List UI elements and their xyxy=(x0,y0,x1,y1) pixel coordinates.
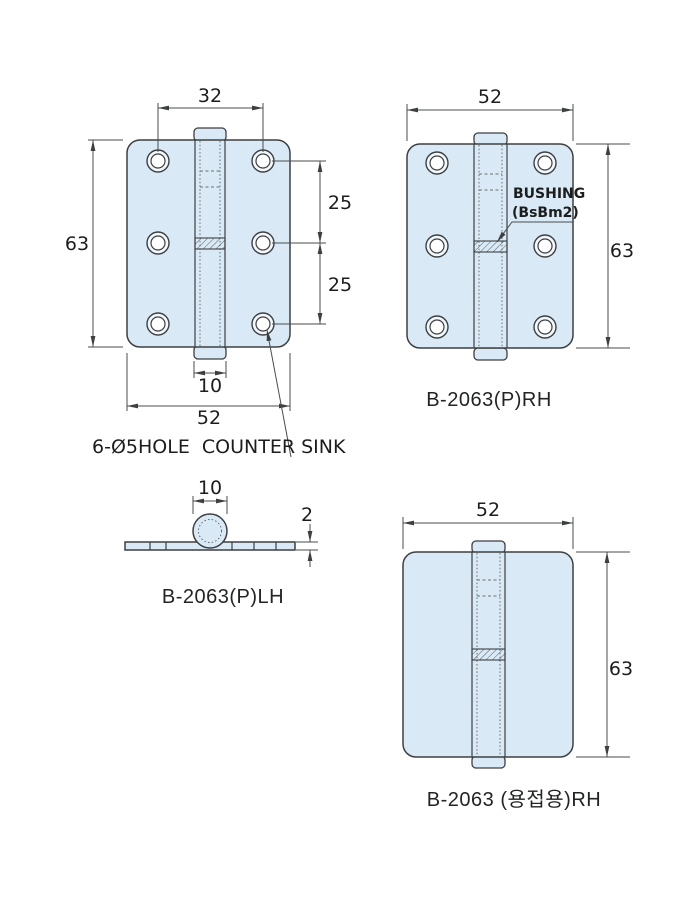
hole xyxy=(534,316,556,338)
view-front-lh: 32 63 25 25 10 52 6-Ø5HOLE COUNTER SINK xyxy=(65,85,352,458)
bushing-section xyxy=(472,649,505,660)
knuckle-tab-top xyxy=(472,541,505,553)
knuckle-tab-top xyxy=(194,128,226,141)
part-label: B-2063(P)LH xyxy=(162,586,284,608)
knuckle-tab-top xyxy=(474,133,507,145)
dim-label-63: 63 xyxy=(65,233,89,255)
part-label: B-2063 (용접용)RH xyxy=(427,788,601,811)
knuckle-tab-bottom xyxy=(194,346,226,359)
knuckle-tab-bottom xyxy=(474,348,507,360)
hole xyxy=(534,152,556,174)
dimension-knuckle-width: 10 xyxy=(193,477,227,514)
dim-label-63: 63 xyxy=(610,240,634,262)
hole xyxy=(147,232,169,254)
hole xyxy=(534,235,556,257)
hole xyxy=(426,235,448,257)
hole xyxy=(252,232,274,254)
dimension-height: 63 xyxy=(576,552,633,757)
dim-label-2: 2 xyxy=(301,504,313,526)
hole xyxy=(252,313,274,335)
dimension-knuckle-width: 10 xyxy=(194,361,226,397)
bushing-spec: (BsBm2) xyxy=(512,205,579,221)
hole xyxy=(147,150,169,172)
technical-drawing: 32 63 25 25 10 52 6-Ø5HOLE COUNTER SINK xyxy=(0,0,700,899)
dimension-height: 63 xyxy=(65,140,123,347)
hole xyxy=(426,152,448,174)
part-label: B-2063(P)RH xyxy=(426,389,552,411)
dim-label-52: 52 xyxy=(478,86,502,108)
dim-label-32: 32 xyxy=(198,85,222,107)
dimension-thickness: 2 xyxy=(296,504,318,567)
dimension-height: 63 xyxy=(576,144,634,348)
bushing-section xyxy=(474,241,507,252)
dim-label-25-lower: 25 xyxy=(328,274,352,296)
view-front-weld-rh: 52 63 B-2063 (용접용)RH xyxy=(403,499,633,811)
view-front-rh: 52 63 BUSHING (BsBm2) B-2063(P)RH xyxy=(407,86,634,411)
bushing-title: BUSHING xyxy=(513,186,585,202)
knuckle-tab-bottom xyxy=(472,756,505,768)
drawing-sheet: 32 63 25 25 10 52 6-Ø5HOLE COUNTER SINK xyxy=(0,0,700,899)
countersink-note: 6-Ø5HOLE COUNTER SINK xyxy=(92,436,346,458)
dim-label-10: 10 xyxy=(198,375,222,397)
dim-label-63: 63 xyxy=(609,658,633,680)
dim-label-52: 52 xyxy=(197,407,221,429)
hole xyxy=(426,316,448,338)
view-side-lh: 10 2 B-2063(P)LH xyxy=(125,477,318,608)
hole xyxy=(147,313,169,335)
hole xyxy=(252,150,274,172)
dim-label-52: 52 xyxy=(476,499,500,521)
dim-label-25-upper: 25 xyxy=(328,192,352,214)
bushing-section xyxy=(195,238,225,249)
dim-label-10: 10 xyxy=(198,477,222,499)
